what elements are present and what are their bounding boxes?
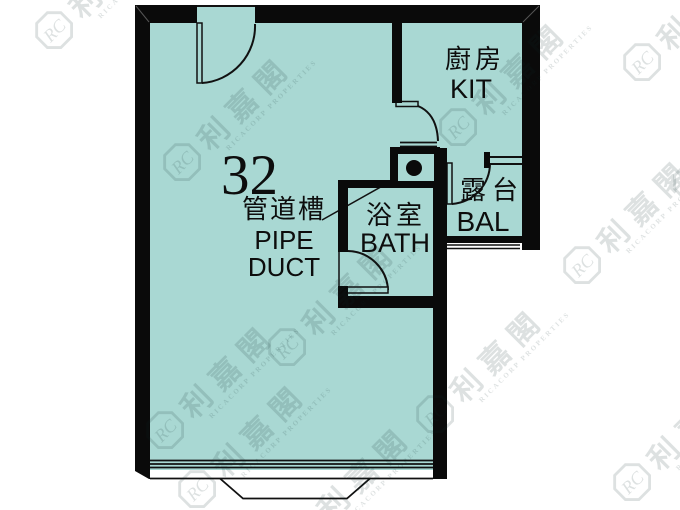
balcony-label-en: BAL: [423, 208, 543, 236]
balcony-label-zh: 露台: [429, 178, 549, 204]
pipe-duct-symbol: [406, 160, 422, 176]
kitchen-label-zh: 廚房: [413, 47, 533, 73]
pipe-duct-label-en-line2: DUCT: [224, 254, 344, 280]
bathroom-door-leaf: [346, 287, 388, 293]
kitchen-label-en: KIT: [411, 76, 531, 103]
entrance-door-leaf: [197, 23, 202, 83]
floor-plan-page: RC利嘉閣RICACORP PROPERTIESRC利嘉閣RICACORP PR…: [0, 0, 680, 510]
pipe-duct-label-en-line1: PIPE: [224, 227, 344, 253]
